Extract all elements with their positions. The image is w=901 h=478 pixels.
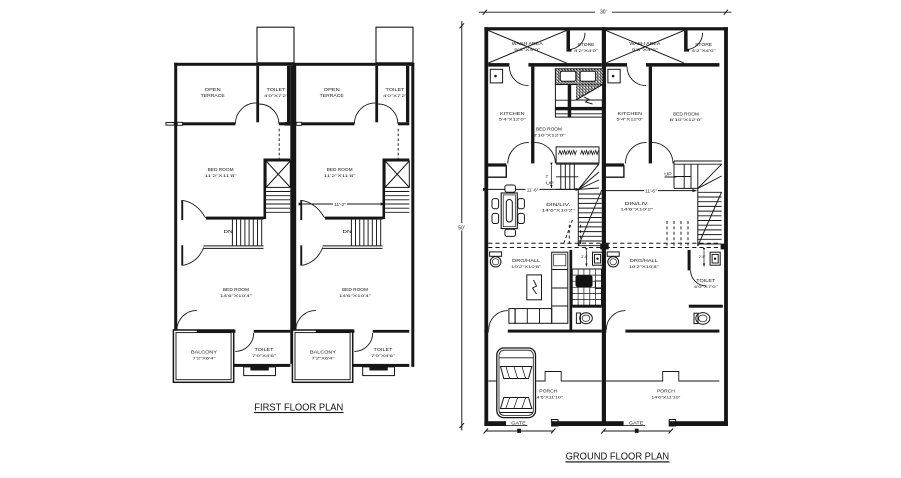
svg-text:2': 2'	[545, 174, 548, 178]
svg-text:DIN/LIV.: DIN/LIV.	[625, 201, 649, 206]
svg-text:11'2"X11'8": 11'2"X11'8"	[205, 173, 238, 178]
svg-text:TOILET: TOILET	[267, 87, 286, 92]
svg-text:14'6"X10'2": 14'6"X10'2"	[620, 207, 654, 212]
svg-text:4'0"X7'0": 4'0"X7'0"	[694, 284, 719, 289]
svg-text:PORCH: PORCH	[539, 389, 557, 394]
svg-text:11'-6": 11'-6"	[527, 187, 539, 192]
svg-text:5'4"X12'0": 5'4"X12'0"	[499, 117, 527, 122]
svg-text:11'-2": 11'-2"	[334, 202, 346, 207]
svg-text:14'6"X10'2": 14'6"X10'2"	[542, 208, 576, 213]
svg-text:DRG/HALL: DRG/HALL	[512, 258, 541, 263]
svg-text:BED ROOM: BED ROOM	[208, 167, 234, 172]
svg-text:GROUND FLOOR PLAN: GROUND FLOOR PLAN	[566, 451, 670, 462]
svg-text:5'3"X4'0": 5'3"X4'0"	[514, 47, 541, 52]
svg-text:11'-6": 11'-6"	[645, 189, 657, 194]
svg-text:BED ROOM: BED ROOM	[673, 111, 699, 116]
svg-text:BALCONY: BALCONY	[191, 350, 217, 355]
svg-text:DIN/LIV.: DIN/LIV.	[546, 202, 570, 207]
svg-text:DN: DN	[224, 229, 233, 234]
svg-text:4'2"X4'0": 4'2"X4'0"	[574, 48, 599, 53]
svg-text:TOILET: TOILET	[255, 347, 274, 352]
svg-text:TERRACE: TERRACE	[201, 93, 225, 98]
svg-text:BED ROOM: BED ROOM	[536, 127, 562, 132]
svg-text:UP: UP	[664, 172, 672, 177]
svg-text:FIRST FLOOR PLAN: FIRST FLOOR PLAN	[254, 402, 343, 413]
svg-text:30': 30'	[600, 9, 607, 15]
svg-text:14'6"X11'10": 14'6"X11'10"	[534, 395, 564, 400]
svg-text:7'2"X6'4": 7'2"X6'4"	[193, 356, 217, 361]
svg-text:10'2"X10'8": 10'2"X10'8"	[511, 264, 542, 269]
svg-text:8'10"X12'0": 8'10"X12'0"	[533, 133, 567, 138]
svg-text:2'-6": 2'-6"	[581, 255, 589, 259]
svg-text:UP: UP	[546, 180, 554, 185]
svg-text:TOILET: TOILET	[696, 278, 715, 283]
svg-text:BED ROOM: BED ROOM	[223, 287, 249, 292]
svg-text:WASH AREA: WASH AREA	[512, 41, 543, 46]
svg-text:7'0"X4'6": 7'0"X4'6"	[252, 353, 277, 358]
svg-text:14'6"X10'4": 14'6"X10'4"	[220, 293, 253, 298]
svg-text:OPEN: OPEN	[205, 87, 221, 92]
svg-text:KITCHEN: KITCHEN	[500, 111, 525, 116]
svg-text:8'10"X12'0": 8'10"X12'0"	[670, 117, 704, 122]
svg-text:GATE: GATE	[511, 420, 526, 425]
svg-text:4'0"X7'2": 4'0"X7'2"	[264, 93, 289, 98]
svg-text:50': 50'	[458, 226, 465, 232]
